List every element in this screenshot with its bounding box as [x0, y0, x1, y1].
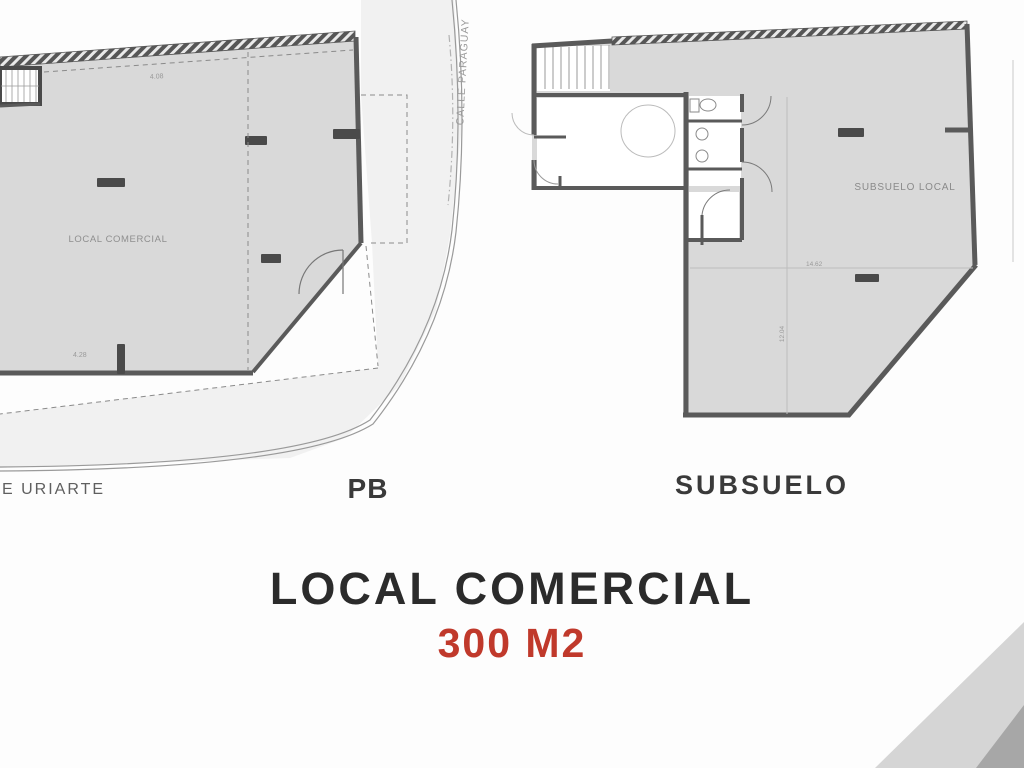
- corner-decoration: [864, 618, 1024, 768]
- pb-room-label: LOCAL COMERCIAL: [69, 234, 168, 245]
- wc-room-lower: [689, 192, 739, 238]
- pb-room-area: [0, 38, 361, 372]
- toilet-tank-icon: [690, 99, 699, 112]
- stair-room: [537, 46, 610, 91]
- floorplan-page: LOCAL COMERCIAL 4.08 4.28 E URIARTE CALL…: [0, 0, 1024, 768]
- pb-floor-plan: LOCAL COMERCIAL 4.08 4.28 E URIARTE CALL…: [0, 0, 472, 504]
- subsuelo-floor-plan: SUBSUELO LOCAL 14.62 12.04 SUBSUELO: [512, 21, 1013, 500]
- pb-floor-label: PB: [348, 473, 389, 504]
- subsuelo-dim-horizontal: 14.62: [806, 261, 823, 268]
- street-name-uriarte: E URIARTE: [2, 481, 105, 498]
- toilet-bowl-icon: [700, 99, 716, 111]
- pb-dim-bottom: 4.28: [73, 352, 87, 359]
- pb-dim-top: 4.08: [150, 73, 164, 81]
- sink-icon: [696, 150, 708, 162]
- subsuelo-room-label: SUBSUELO LOCAL: [854, 182, 955, 193]
- machine-circle: [621, 105, 675, 157]
- subsuelo-dim-vertical: 12.04: [779, 325, 786, 342]
- subsuelo-floor-label: SUBSUELO: [675, 470, 849, 500]
- pb-grid-box: [0, 68, 40, 104]
- sink-icon: [696, 128, 708, 140]
- floorplans-drawing: LOCAL COMERCIAL 4.08 4.28 E URIARTE CALL…: [0, 0, 1024, 540]
- listing-title: LOCAL COMERCIAL: [0, 566, 1024, 611]
- street-name-paraguay: CALLE PARAGUAY: [454, 18, 472, 125]
